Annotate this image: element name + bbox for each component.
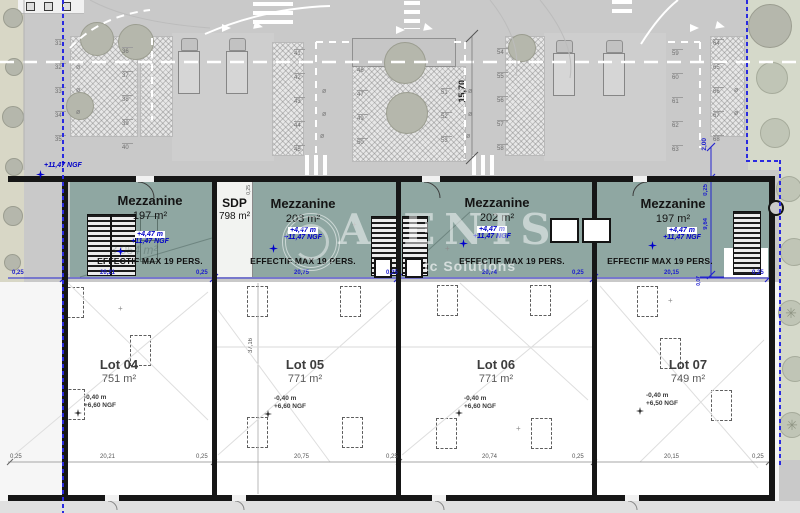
pillar	[637, 286, 658, 317]
property-line-east-upper	[746, 0, 748, 160]
truck-icon	[178, 38, 200, 94]
tree-icon	[760, 118, 790, 148]
parking-stall-number: 53	[441, 136, 452, 144]
parking-stall-number: 44	[294, 121, 305, 129]
parking-stall-number: 67	[713, 111, 724, 119]
parking-stall-number: 42	[294, 73, 305, 81]
lot-name: Lot 04	[84, 357, 154, 372]
mezzanine-title: Mezzanine	[437, 195, 557, 210]
dim-bottom-2: 0,25	[196, 454, 208, 460]
lot-ngf: +6,60 NGF	[84, 402, 116, 409]
pillar	[530, 285, 551, 316]
dim-bottom-3: 20,75	[294, 454, 309, 460]
dim-top-8: 0,25	[752, 270, 764, 276]
occupancy-label: EFFECTIF MAX 19 PERS.	[245, 256, 361, 266]
stall-numbers-64-68: 6465666768	[713, 39, 724, 143]
street-ngf-label: +11,47 NGF	[44, 162, 82, 170]
pillar	[436, 418, 457, 449]
parking-stall-number: 64	[713, 39, 724, 47]
bottom-road-strip	[0, 501, 800, 513]
parking-stall-number: 55	[497, 72, 508, 80]
tree-icon	[80, 22, 114, 56]
parking-stall-number: 32	[55, 63, 66, 71]
parking-stall-number: 34	[55, 111, 66, 119]
level-value: +4,47 m	[288, 227, 318, 234]
road-arrow-icon	[222, 24, 231, 32]
survey-cross-icon: +	[118, 304, 123, 313]
parking-stall-number: 35	[55, 135, 66, 143]
parking-stall-number: 37	[122, 71, 133, 79]
door-opening	[633, 176, 647, 182]
dim-top-1: 20,21	[100, 270, 115, 276]
pillar	[711, 390, 732, 421]
stall-numbers-island-right: 515253	[441, 88, 452, 144]
dim-right-wall: 0,25	[703, 184, 709, 196]
mezzanine-title: Mezzanine	[613, 196, 733, 211]
occupancy-label: EFFECTIF MAX 19 PERS.	[92, 256, 208, 266]
parking-stall-number: 56	[497, 96, 508, 104]
dim-right-depth: 9,64	[703, 218, 709, 230]
property-line-west	[62, 0, 64, 513]
stair-landing	[405, 258, 423, 278]
dim-top-7: 20,15	[664, 270, 679, 276]
crosswalk	[305, 155, 332, 175]
mezzanine-area: 197 m²	[613, 213, 733, 225]
lot-ngf: +6,50 NGF	[646, 400, 678, 407]
parking-stall-number: 46	[357, 66, 368, 74]
survey-cross-icon: +	[668, 296, 673, 305]
occupancy-label: EFFECTIF MAX 19 PERS.	[453, 256, 571, 266]
door-opening	[232, 495, 246, 501]
dim-bottom-1: 20,21	[100, 454, 115, 460]
dim-right-small: 0,07	[696, 276, 702, 286]
parking-stall-number: 54	[497, 48, 508, 56]
lot-level: -0,40 m	[646, 392, 668, 399]
stall-numbers-36-40: 3637383940	[122, 47, 133, 151]
lot-level-label: -0,40 m +6,60 NGF	[464, 395, 496, 411]
pillar	[247, 417, 268, 448]
lots-floor	[67, 282, 770, 496]
crosswalk	[472, 155, 494, 175]
level-value: +4,47 m	[477, 226, 507, 233]
ngf-value: +11,47 NGF	[131, 238, 169, 245]
mezzanine-area: 202 m²	[437, 212, 557, 224]
tree-icon	[756, 62, 788, 94]
truck-icon	[226, 38, 248, 94]
dim-right-offset: 2,00	[701, 138, 708, 151]
survey-cross-icon: +	[516, 424, 521, 433]
parking-stall-number: 52	[441, 112, 452, 120]
sdp-strip-dim: 0,25	[246, 185, 252, 195]
shrub-icon	[76, 87, 80, 94]
tree-icon: ✳	[778, 300, 800, 326]
hedge-tree-icon	[5, 58, 23, 76]
hedge-tree-icon	[3, 206, 23, 226]
road-arrow-icon	[690, 24, 699, 32]
ngf-value: +11,47 NGF	[284, 234, 322, 241]
site-plan: ✳ ✳ 3132333435 3637383940 4142434445 464…	[0, 0, 800, 513]
level-label: +4,47 m +11,47 NGF	[464, 226, 520, 240]
crosswalk	[612, 0, 632, 14]
parking-stall-number: 68	[713, 135, 724, 143]
shrub-icon	[320, 133, 324, 140]
lot-name: Lot 07	[653, 357, 723, 372]
shrub-icon	[468, 111, 472, 118]
shrub-icon	[76, 64, 80, 71]
level-value: +4,47 m	[135, 231, 165, 238]
mezzanine-area: 197 m²	[90, 210, 210, 222]
occupancy-label: EFFECTIF MAX 19 PERS.	[601, 256, 719, 266]
dim-top-3: 20,75	[294, 270, 309, 276]
truck-icon	[603, 40, 625, 96]
parking-stall-number: 51	[441, 88, 452, 96]
parking-stall-number: 33	[55, 87, 66, 95]
tree-icon	[508, 34, 536, 62]
utility-circle-icon	[768, 200, 784, 216]
parking-stall-number: 58	[497, 144, 508, 152]
hedge-tree-icon	[2, 106, 24, 128]
stall-numbers-54-58: 5455565758	[497, 48, 508, 152]
shrub-icon	[468, 88, 472, 95]
tree-icon: ✳	[779, 412, 800, 438]
mezzanine-title: Mezzanine	[243, 196, 363, 211]
pillar	[437, 285, 458, 316]
mezzanine-title: Mezzanine	[90, 193, 210, 208]
dim-top-5: 20,74	[482, 270, 497, 276]
lot-ngf: +6,60 NGF	[274, 403, 306, 410]
parking-stall-number: 47	[357, 90, 368, 98]
parking-stall-number: 59	[672, 49, 683, 57]
tree-icon	[386, 92, 428, 134]
crosswalk	[404, 1, 420, 29]
lot-area: 751 m²	[84, 373, 154, 385]
shrub-icon	[322, 111, 326, 118]
stall-numbers-31-35: 3132333435	[55, 39, 66, 143]
stall-numbers-59-63: 5960616263	[672, 49, 683, 153]
stall-numbers-41-45: 4142434445	[294, 49, 305, 153]
shrub-icon	[322, 88, 326, 95]
parking-stall-number: 65	[713, 63, 724, 71]
pillar	[342, 417, 363, 448]
lot-level: -0,40 m	[274, 395, 296, 402]
dim-top-6: 0,25	[572, 270, 584, 276]
lot-area: 771 m²	[270, 373, 340, 385]
road-arrow-icon	[396, 26, 405, 34]
mezzanine-area: 203 m²	[243, 213, 363, 225]
parking-stall-number: 41	[294, 49, 305, 57]
parking-stall-number: 50	[357, 138, 368, 146]
parking-stall-number: 62	[672, 121, 683, 129]
property-line-east-jog	[746, 160, 780, 162]
lot-name: Lot 06	[461, 357, 531, 372]
dim-bottom-7: 20,15	[664, 454, 679, 460]
parking-stall-number: 40	[122, 143, 133, 151]
road-arrow-icon	[423, 23, 434, 33]
pillar	[340, 286, 361, 317]
stall-numbers-island-left: 46474950	[357, 66, 368, 146]
parking-stall-number: 43	[294, 97, 305, 105]
dim-top-2: 0,25	[196, 270, 208, 276]
parking-stall-number: 39	[122, 119, 133, 127]
dim-bottom-8: 0,25	[752, 454, 764, 460]
dim-lot-depth: 37,16	[248, 338, 254, 353]
shrub-icon	[734, 110, 738, 117]
east-wall	[769, 176, 775, 501]
pillar	[531, 418, 552, 449]
property-line-east-lower	[779, 160, 781, 465]
dim-bottom-6: 0,25	[572, 454, 584, 460]
door-opening	[422, 176, 440, 182]
tree-icon	[748, 4, 792, 48]
lot-level-label: -0,40 m +6,60 NGF	[274, 395, 306, 411]
lot-level: -0,40 m	[464, 395, 486, 402]
truck-icon	[553, 40, 575, 96]
vent-icon	[44, 2, 53, 11]
survey-cross-icon: +	[445, 244, 450, 253]
parking-stall-number: 61	[672, 97, 683, 105]
door-opening	[625, 495, 639, 501]
parking-stall-number: 49	[357, 114, 368, 122]
parking-stall-number: 57	[497, 120, 508, 128]
dim-bottom-4: 0,25	[386, 454, 398, 460]
lot-level: -0,40 m	[84, 394, 106, 401]
parking-stall-number: 60	[672, 73, 683, 81]
dim-bottom-0: 0,25	[10, 454, 22, 460]
level-value: +4,47 m	[667, 227, 697, 234]
hedge-tree-icon	[4, 254, 21, 271]
parking-stall-number: 31	[55, 39, 66, 47]
shrub-icon	[76, 109, 80, 116]
dim-road-width: 15,70	[458, 80, 468, 103]
dim-bottom-5: 20,74	[482, 454, 497, 460]
vent-icon	[26, 2, 35, 11]
pillar	[247, 286, 268, 317]
road-arrow-icon	[715, 21, 726, 31]
lot-ngf: +6,60 NGF	[464, 403, 496, 410]
door-opening	[105, 495, 119, 501]
parking-stall-number: 63	[672, 145, 683, 153]
lot-name: Lot 05	[270, 357, 340, 372]
door-opening	[432, 495, 446, 501]
shrub-icon	[466, 133, 470, 140]
ngf-value: +11,47 NGF	[663, 234, 701, 241]
tree-icon	[780, 238, 800, 266]
ghost-area-label: 3 054 m²	[110, 243, 157, 257]
south-wall	[8, 495, 775, 501]
level-label: +4,47 m +11,47 NGF	[275, 227, 331, 241]
staircase	[733, 211, 761, 275]
dim-top-0: 0,25	[12, 270, 24, 276]
parking-stall-number: 36	[122, 47, 133, 55]
parking-stall-number: 45	[294, 145, 305, 153]
lot-level-label: -0,40 m +6,50 NGF	[646, 392, 678, 408]
hedge-tree-icon	[5, 158, 23, 176]
lot-area: 771 m²	[461, 373, 531, 385]
dim-top-4: 0,25	[386, 270, 398, 276]
party-wall-1	[212, 176, 217, 501]
level-label: +4,47 m +11,47 NGF	[654, 227, 710, 241]
ngf-value: +11,47 NGF	[473, 233, 511, 240]
road-arrow-icon	[253, 21, 264, 31]
door-opening	[136, 176, 154, 182]
tree-icon	[384, 42, 426, 84]
shrub-icon	[734, 87, 738, 94]
parking-stall-number: 66	[713, 87, 724, 95]
parking-stall-number: 38	[122, 95, 133, 103]
lot-area: 749 m²	[653, 373, 723, 385]
lot-level-label: -0,40 m +6,60 NGF	[84, 394, 116, 410]
skylight	[582, 218, 611, 243]
hedge-tree-icon	[3, 8, 23, 28]
north-wall	[8, 176, 775, 182]
staircase	[87, 214, 111, 276]
level-label: +4,47 m +11,47 NGF	[122, 231, 178, 245]
